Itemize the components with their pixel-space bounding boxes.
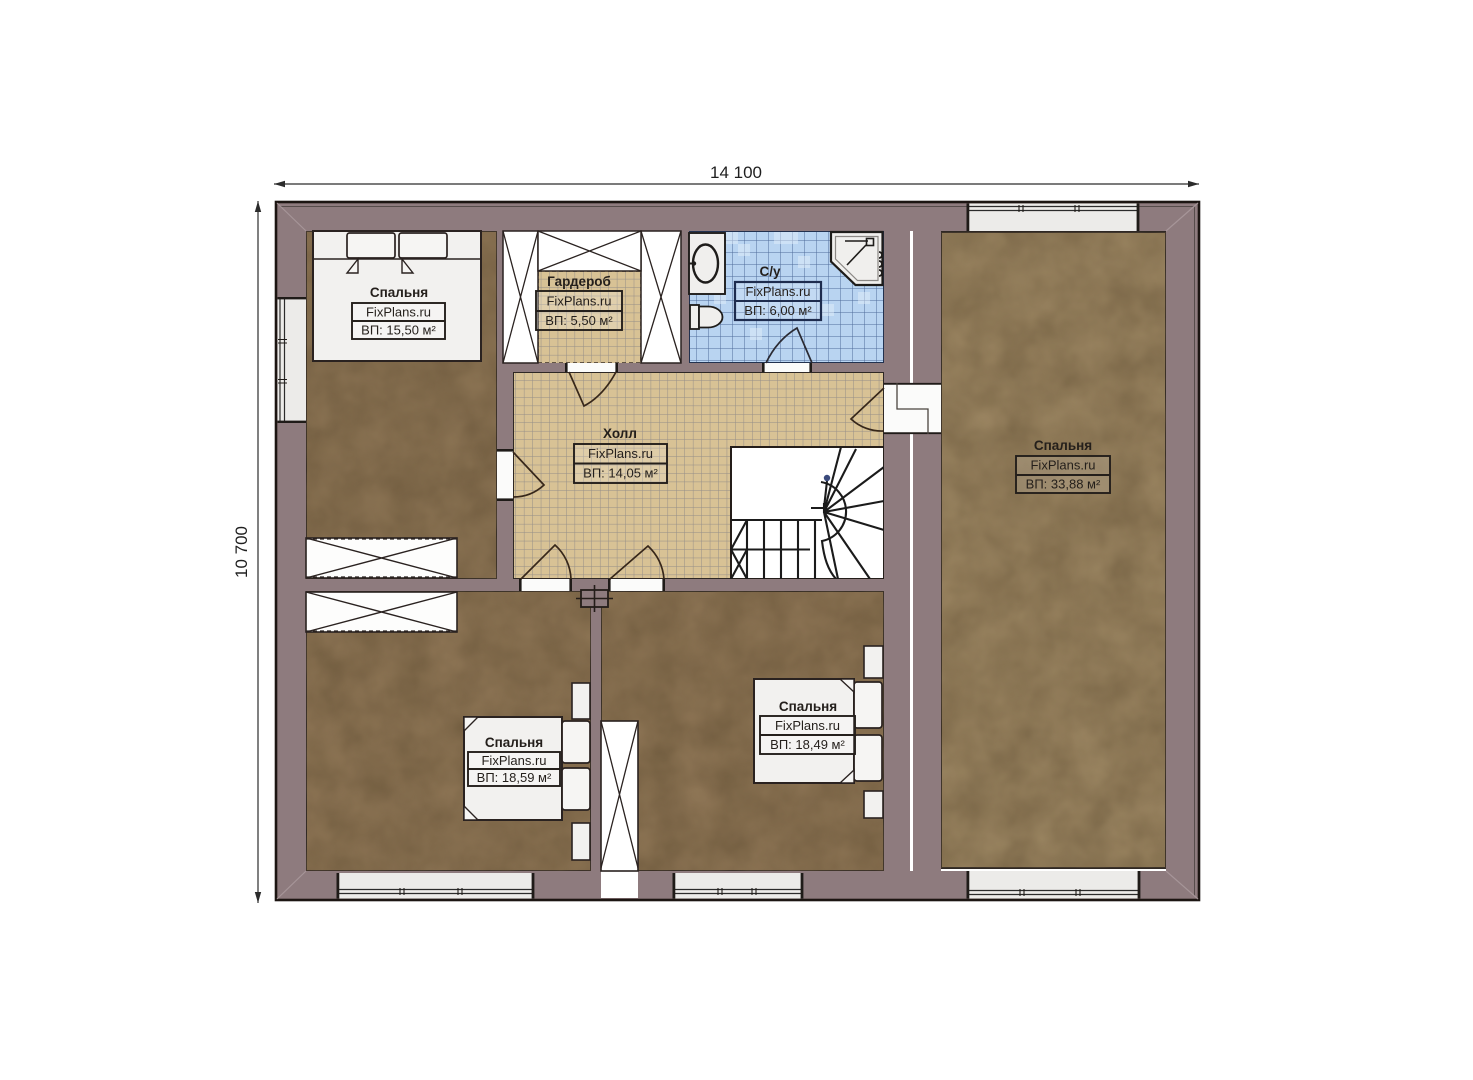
- svg-text:ВП: 6,00 м²: ВП: 6,00 м²: [744, 303, 812, 318]
- svg-text:ВП: 33,88 м²: ВП: 33,88 м²: [1026, 477, 1101, 492]
- svg-text:FixPlans.ru: FixPlans.ru: [546, 294, 611, 309]
- svg-text:FixPlans.ru: FixPlans.ru: [745, 284, 810, 299]
- svg-text:Спальня: Спальня: [370, 285, 428, 300]
- svg-text:FixPlans.ru: FixPlans.ru: [366, 305, 431, 320]
- svg-text:ВП: 15,50 м²: ВП: 15,50 м²: [361, 323, 436, 338]
- svg-text:ВП: 18,49 м²: ВП: 18,49 м²: [770, 737, 845, 752]
- svg-text:ВП: 5,50 м²: ВП: 5,50 м²: [545, 313, 613, 328]
- svg-text:FixPlans.ru: FixPlans.ru: [588, 446, 653, 461]
- svg-text:Холл: Холл: [603, 426, 637, 441]
- svg-text:Спальня: Спальня: [779, 699, 837, 714]
- svg-text:Гардероб: Гардероб: [547, 274, 611, 289]
- svg-text:FixPlans.ru: FixPlans.ru: [775, 718, 840, 733]
- svg-text:ВП: 18,59 м²: ВП: 18,59 м²: [477, 770, 552, 785]
- svg-text:С/у: С/у: [759, 264, 781, 279]
- svg-text:Спальня: Спальня: [485, 735, 543, 750]
- svg-text:FixPlans.ru: FixPlans.ru: [481, 753, 546, 768]
- svg-text:10 700: 10 700: [232, 526, 251, 578]
- svg-text:ВП: 14,05 м²: ВП: 14,05 м²: [583, 466, 658, 481]
- svg-text:FixPlans.ru: FixPlans.ru: [1030, 458, 1095, 473]
- svg-text:14 100: 14 100: [710, 163, 762, 182]
- svg-text:Спальня: Спальня: [1034, 438, 1092, 453]
